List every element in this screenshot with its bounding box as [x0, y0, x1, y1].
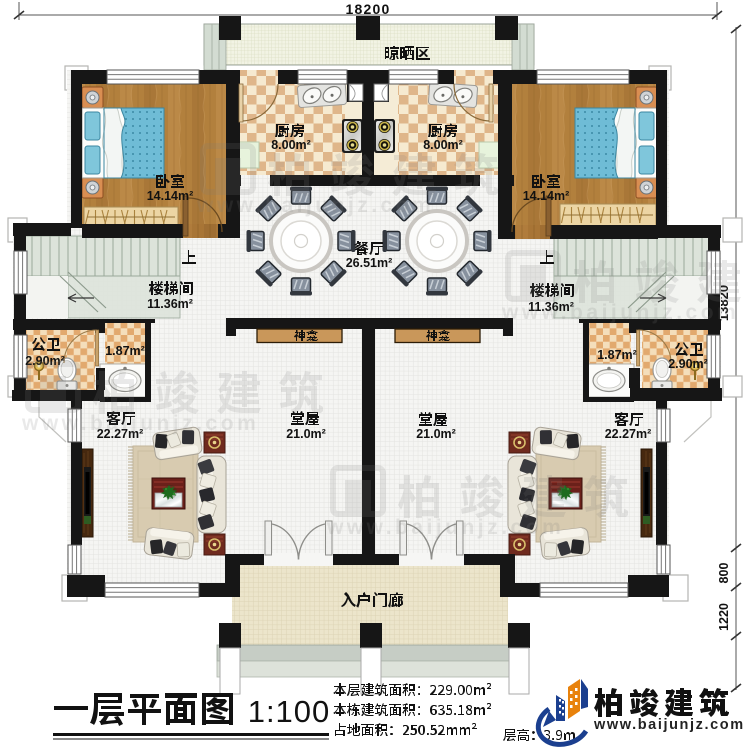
svg-text:21.0m²: 21.0m²	[416, 427, 456, 441]
svg-text:www.baijunjz.com: www.baijunjz.com	[501, 301, 739, 324]
svg-text:1.87m²: 1.87m²	[105, 344, 145, 358]
svg-text:11.36m²: 11.36m²	[147, 297, 193, 311]
svg-text:14.14m²: 14.14m²	[523, 189, 570, 203]
svg-text:1.87m²: 1.87m²	[597, 348, 637, 362]
svg-text:26.51m²: 26.51m²	[346, 256, 393, 270]
svg-text:www.baijunjz.com: www.baijunjz.com	[593, 717, 745, 733]
svg-text:8.00m²: 8.00m²	[271, 138, 311, 152]
svg-text:www.baijunjz.com: www.baijunjz.com	[326, 516, 564, 539]
svg-text:1:100: 1:100	[248, 694, 331, 729]
svg-text:14.14m²: 14.14m²	[147, 189, 194, 203]
svg-text:22.27m²: 22.27m²	[605, 427, 652, 441]
svg-text:800: 800	[717, 563, 731, 584]
svg-text:18200: 18200	[346, 1, 391, 17]
svg-text:www.baijunjz.com: www.baijunjz.com	[21, 412, 259, 435]
svg-text:1220: 1220	[717, 603, 731, 631]
svg-text:www.baijunjz.com: www.baijunjz.com	[196, 194, 434, 217]
svg-text:8.00m²: 8.00m²	[423, 138, 463, 152]
svg-text:21.0m²: 21.0m²	[286, 427, 326, 441]
svg-text:2.90m²: 2.90m²	[668, 357, 708, 371]
